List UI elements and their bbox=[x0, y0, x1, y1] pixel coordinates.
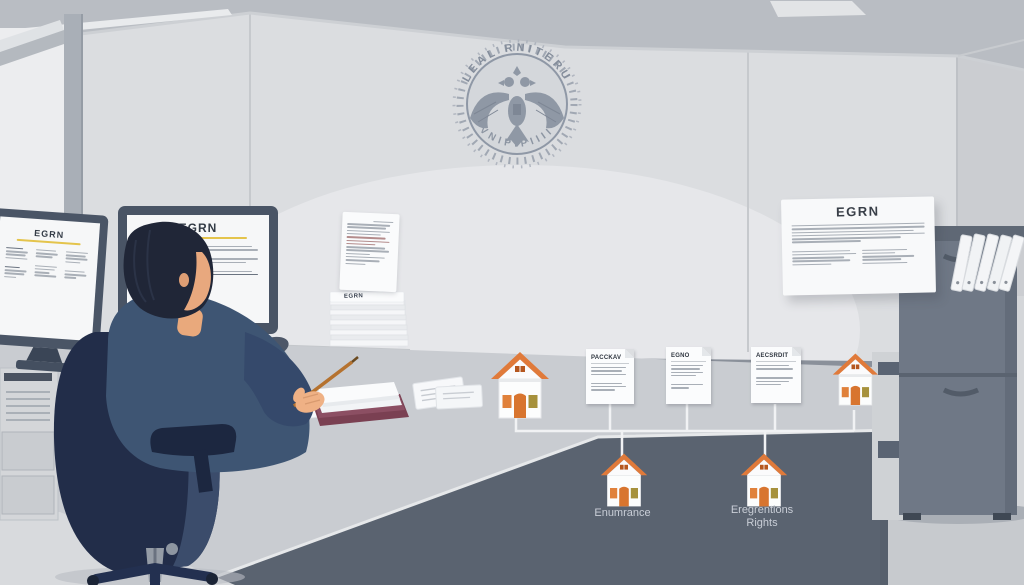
screen-text-columns bbox=[4, 245, 90, 285]
screen-text-columns bbox=[134, 244, 262, 278]
office-illustration: LEAL RNITERU VNIPIPIIII bbox=[0, 0, 1024, 585]
printer-unit bbox=[0, 368, 58, 520]
diagram-card-3: AECSRDIT bbox=[751, 347, 801, 403]
card-title: EGNO bbox=[671, 353, 706, 359]
card-title: AECSRDIT bbox=[756, 353, 796, 359]
title-underline bbox=[149, 237, 246, 239]
diagram-card-2: EGNO bbox=[666, 347, 711, 404]
card-title: PACCKAV bbox=[591, 355, 629, 361]
poster-title: EGRN bbox=[791, 203, 924, 221]
ceiling-light-right bbox=[770, 1, 866, 17]
label-registration-rights: Eregrentions Rights bbox=[712, 504, 812, 530]
wall-poster: EGRN bbox=[781, 196, 936, 295]
floating-receipt bbox=[339, 212, 399, 292]
monitor-left-screen: EGRN bbox=[0, 221, 98, 339]
paper-stack bbox=[330, 292, 408, 348]
label-enumrance: Enumrance bbox=[575, 507, 670, 520]
monitor-main-screen: EGRN bbox=[128, 216, 268, 320]
egrn-title-main-monitor: EGRN bbox=[134, 221, 262, 235]
diagram-card-1: PACCKAV bbox=[586, 349, 634, 404]
